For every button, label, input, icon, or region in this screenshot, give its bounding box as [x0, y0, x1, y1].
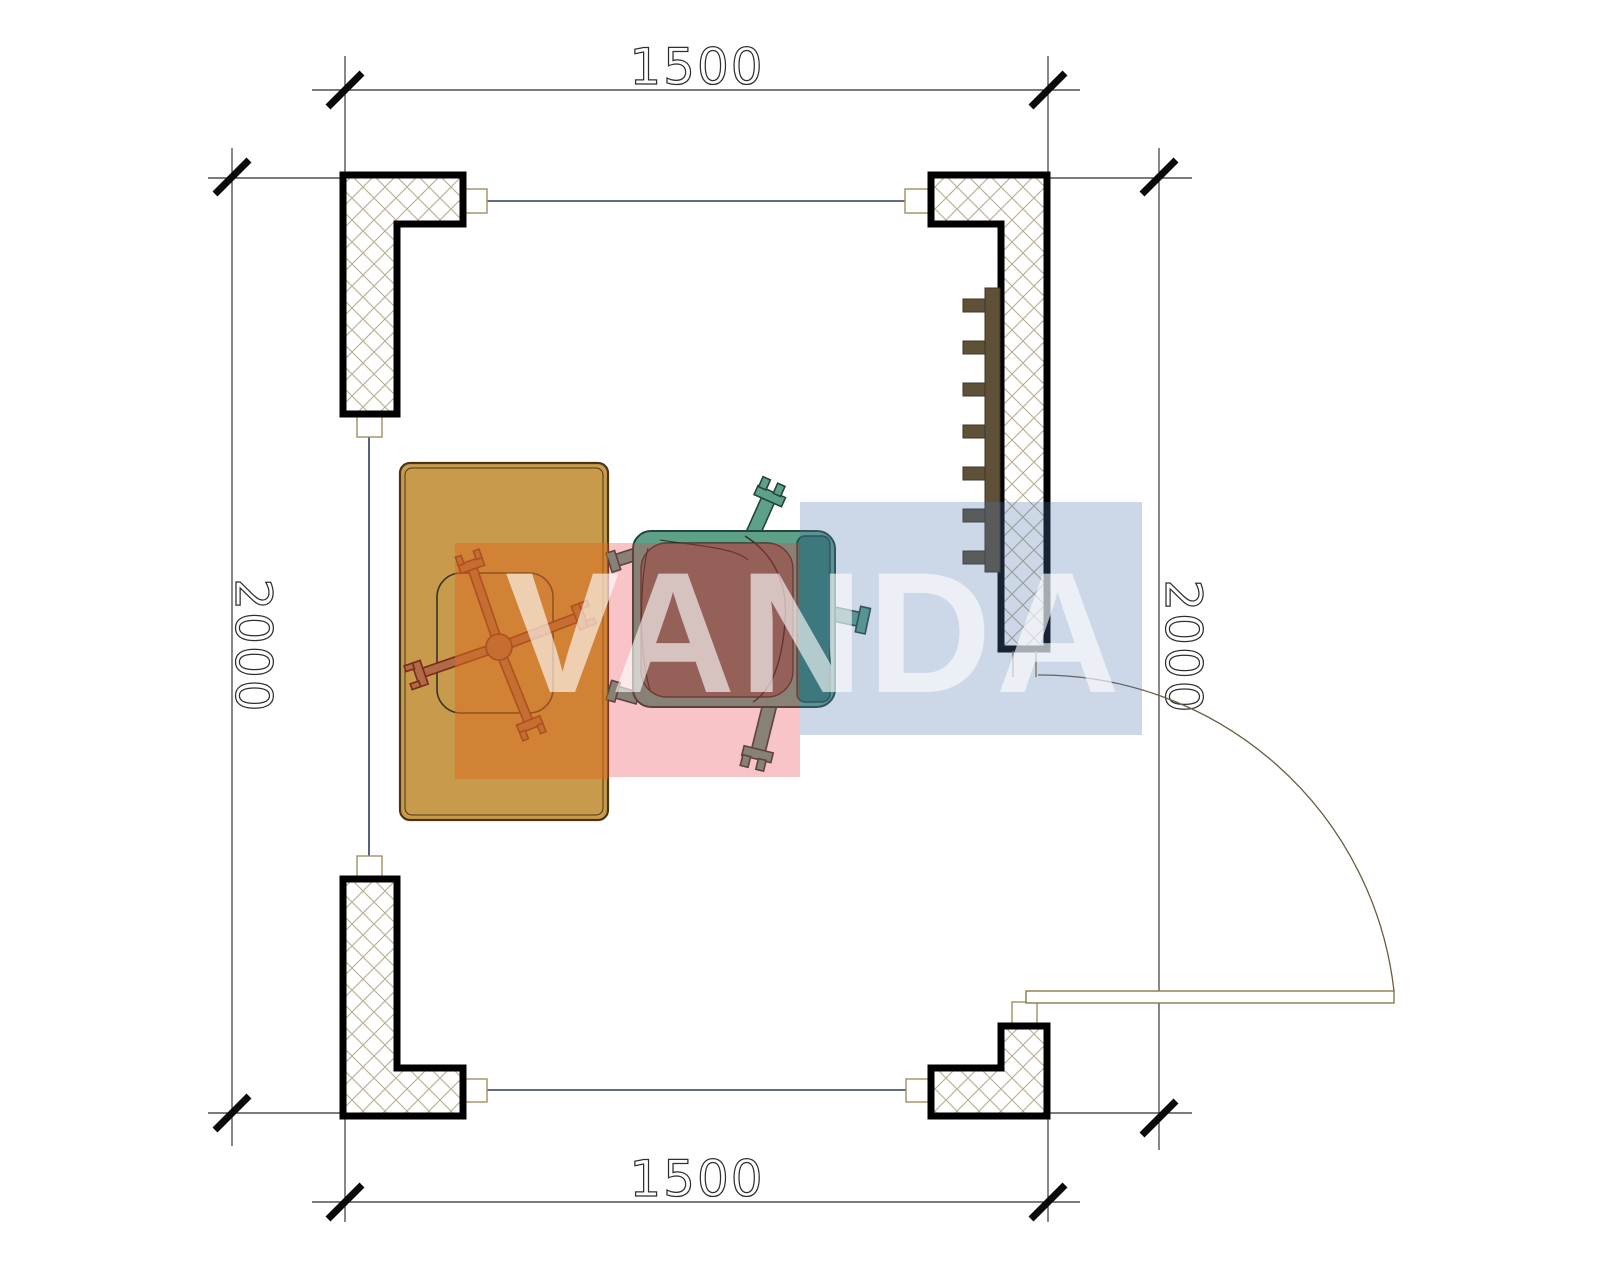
wall-bottom-left — [343, 879, 463, 1116]
door-leaf — [1026, 991, 1394, 1003]
watermark: VANDA — [455, 502, 1142, 779]
wall-bottom-right — [931, 1026, 1047, 1116]
floor-plan-drawing: 1500 1500 2000 2000 — [0, 0, 1600, 1280]
dimension-label-bottom: 1500 — [629, 1150, 764, 1208]
dimension-label-top: 1500 — [629, 38, 764, 96]
dimension-label-left: 2000 — [224, 578, 282, 713]
floor-plan-canvas: 1500 1500 2000 2000 — [0, 0, 1600, 1280]
wall-top-left — [343, 175, 463, 414]
dimension-label-right: 2000 — [1154, 579, 1212, 714]
watermark-text: VANDA — [505, 537, 1124, 729]
